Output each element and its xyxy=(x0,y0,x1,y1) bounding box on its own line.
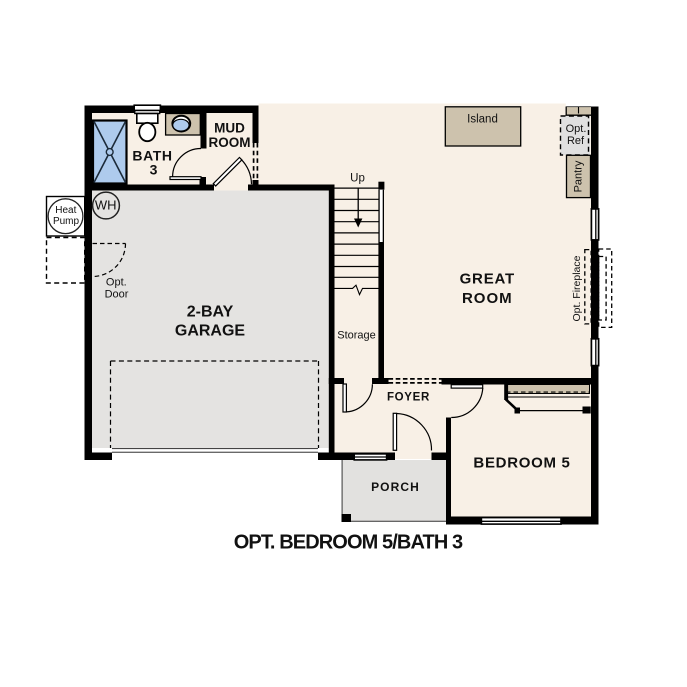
svg-text:OPT. BEDROOM 5/BATH 3: OPT. BEDROOM 5/BATH 3 xyxy=(234,532,463,554)
svg-text:Heat: Heat xyxy=(55,205,76,216)
svg-text:3: 3 xyxy=(150,162,158,178)
svg-text:Door: Door xyxy=(105,288,129,300)
svg-text:Ref: Ref xyxy=(567,135,585,147)
svg-text:FOYER: FOYER xyxy=(387,392,430,404)
svg-text:ROOM: ROOM xyxy=(209,135,251,150)
svg-text:Storage: Storage xyxy=(337,330,376,342)
svg-text:GARAGE: GARAGE xyxy=(175,323,246,340)
svg-text:Pump: Pump xyxy=(53,216,80,227)
svg-text:Opt.: Opt. xyxy=(106,276,127,288)
svg-text:PORCH: PORCH xyxy=(371,480,420,494)
svg-text:Island: Island xyxy=(467,114,498,126)
svg-text:MUD: MUD xyxy=(214,121,245,136)
svg-text:Opt. Fireplace: Opt. Fireplace xyxy=(571,255,583,321)
svg-text:Up: Up xyxy=(350,172,365,184)
svg-text:BEDROOM 5: BEDROOM 5 xyxy=(473,455,570,472)
svg-text:Pantry: Pantry xyxy=(573,160,585,192)
svg-text:GREAT: GREAT xyxy=(460,270,515,287)
svg-text:WH: WH xyxy=(95,198,117,213)
svg-text:2-BAY: 2-BAY xyxy=(187,304,234,321)
svg-text:Opt.: Opt. xyxy=(566,123,587,135)
svg-text:ROOM: ROOM xyxy=(462,290,513,307)
